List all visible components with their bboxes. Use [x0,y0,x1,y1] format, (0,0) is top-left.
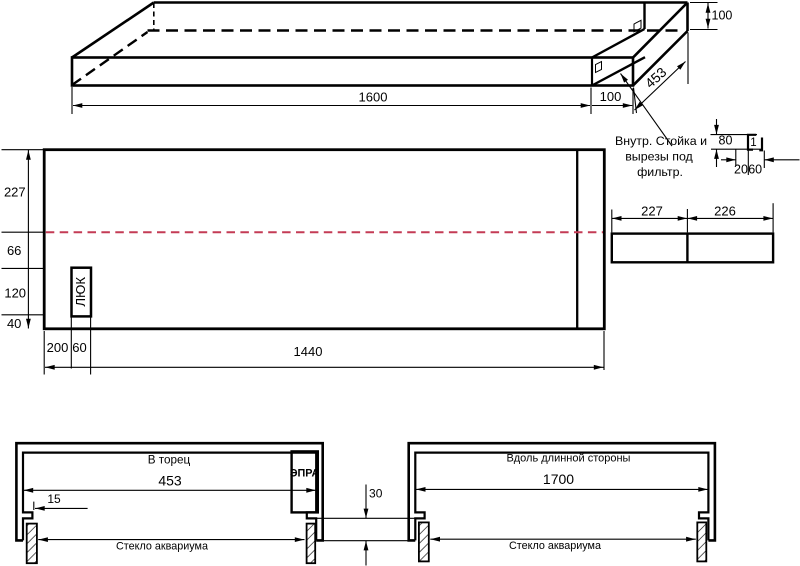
svg-text:60: 60 [748,163,762,177]
svg-text:60: 60 [72,340,86,355]
svg-text:1: 1 [750,137,756,149]
svg-text:15: 15 [47,492,61,506]
svg-text:В торец: В торец [148,454,191,467]
svg-text:Стекло аквариума: Стекло аквариума [509,540,601,552]
svg-text:1700: 1700 [543,471,574,487]
svg-text:40: 40 [7,316,21,331]
svg-text:100: 100 [600,89,622,104]
svg-text:1600: 1600 [359,90,388,105]
svg-text:120: 120 [4,286,26,301]
svg-text:ЛЮК: ЛЮК [73,277,88,307]
svg-text:вырезы под: вырезы под [625,149,693,163]
svg-text:1440: 1440 [294,344,323,359]
svg-text:Внутр. Стойка и: Внутр. Стойка и [615,134,707,148]
svg-text:Стекло аквариума: Стекло аквариума [116,540,208,552]
svg-text:453: 453 [158,472,182,488]
svg-text:ЭПРА: ЭПРА [290,468,320,480]
svg-text:227: 227 [4,184,26,199]
svg-text:100: 100 [712,9,733,23]
svg-text:226: 226 [714,204,736,219]
svg-text:227: 227 [641,204,663,219]
svg-text:30: 30 [369,486,383,500]
svg-text:80: 80 [719,134,733,148]
svg-text:фильтр.: фильтр. [637,165,683,179]
svg-text:200: 200 [47,340,69,355]
svg-text:Вдоль длинной стороны: Вдоль длинной стороны [507,452,631,464]
svg-text:20: 20 [734,163,748,177]
svg-text:66: 66 [7,243,21,258]
